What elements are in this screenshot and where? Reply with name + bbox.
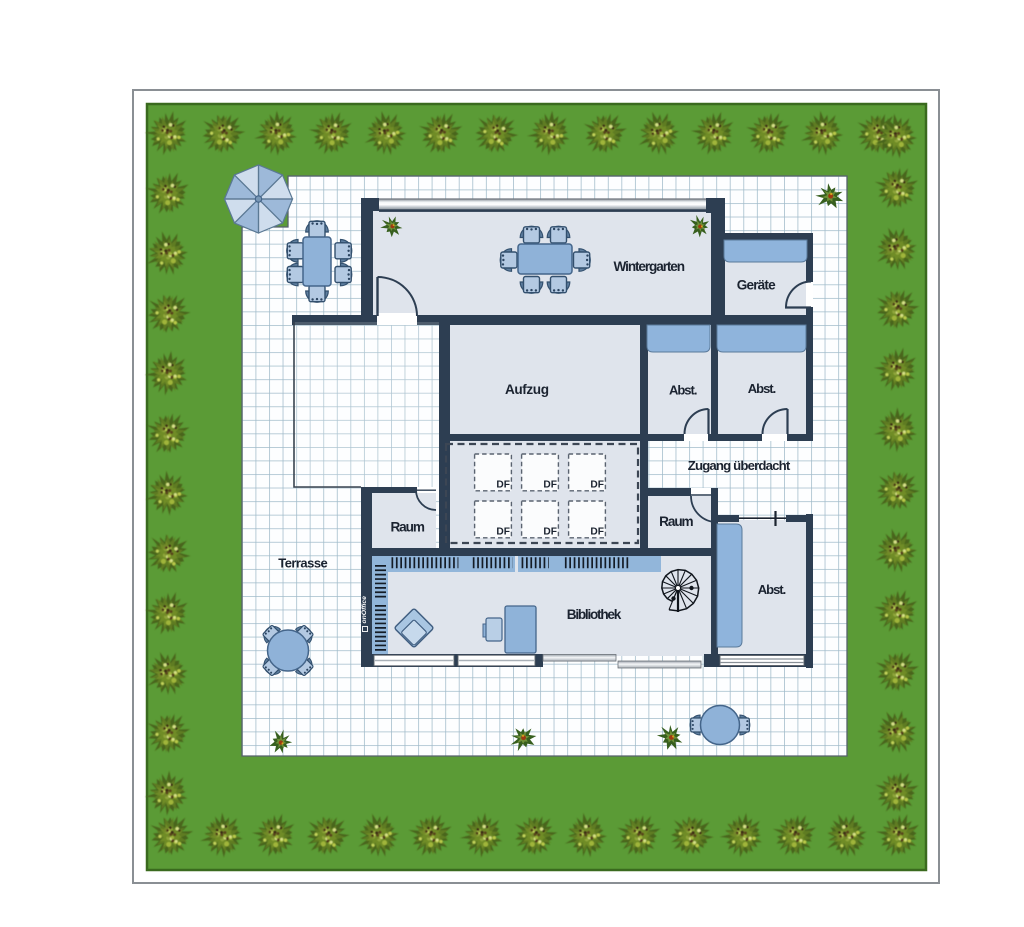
svg-text:Bibliothek: Bibliothek: [567, 607, 622, 622]
svg-text:Zugang überdacht: Zugang überdacht: [688, 458, 791, 473]
svg-text:Raum: Raum: [659, 514, 694, 529]
svg-text:Raum: Raum: [390, 520, 425, 535]
svg-text:Wintergarten: Wintergarten: [614, 259, 686, 274]
svg-text:Geräte: Geräte: [737, 278, 776, 293]
svg-text:Abst.: Abst.: [669, 383, 698, 398]
svg-text:Abst.: Abst.: [758, 582, 787, 597]
svg-text:onOffice: onOffice: [361, 596, 368, 624]
svg-text:DF: DF: [590, 480, 604, 491]
svg-text:Terrasse: Terrasse: [278, 555, 328, 570]
svg-text:Abst.: Abst.: [748, 381, 777, 396]
svg-text:Aufzug: Aufzug: [505, 382, 549, 397]
svg-text:DF: DF: [496, 527, 510, 538]
svg-text:DF: DF: [543, 480, 557, 491]
svg-text:DF: DF: [590, 527, 604, 538]
svg-text:DF: DF: [496, 480, 510, 491]
svg-text:DF: DF: [543, 527, 557, 538]
